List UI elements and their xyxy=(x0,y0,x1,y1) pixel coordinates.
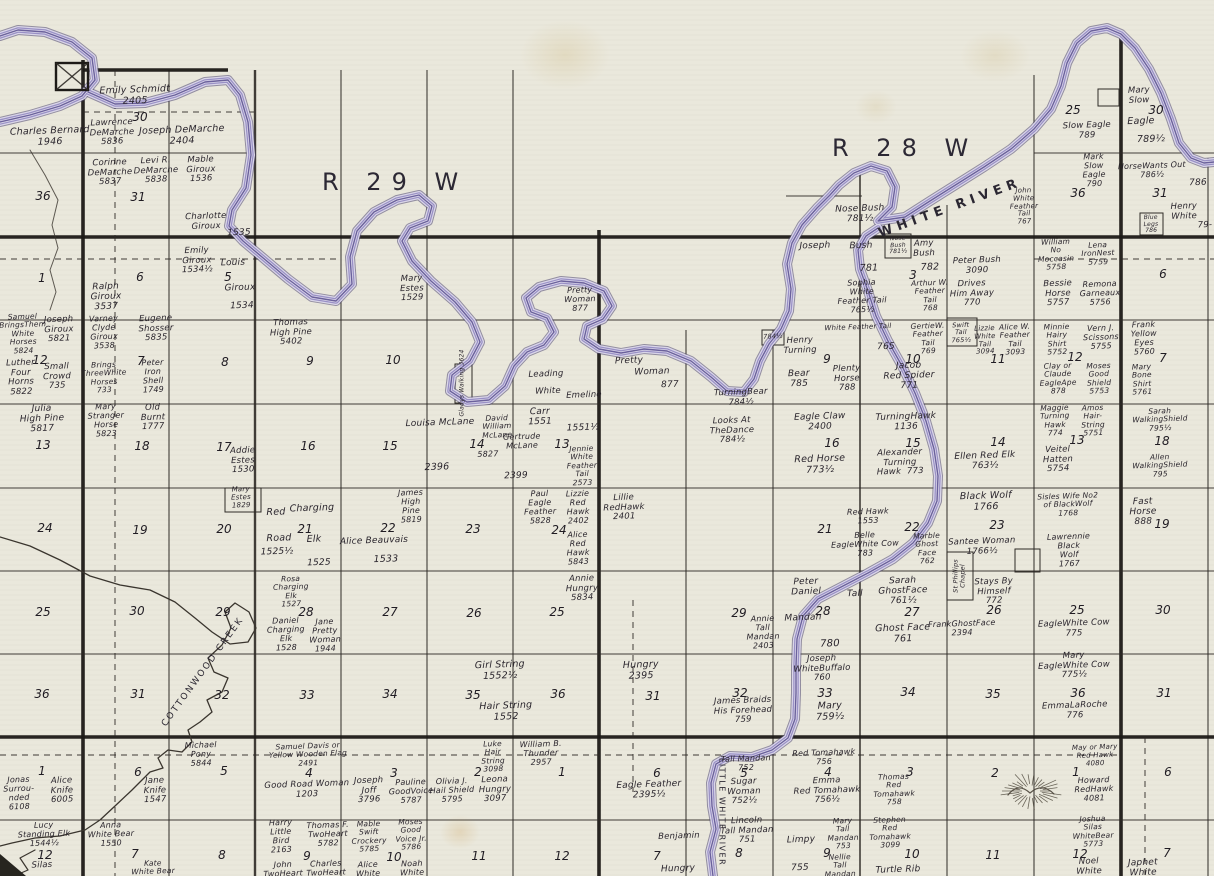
allotment-label: Giroux xyxy=(224,282,255,293)
allotment-label: Pauline GoodVoice 5787 xyxy=(388,778,433,806)
allotment-label: Alice Knife 6005 xyxy=(50,776,74,805)
section-number: 31 xyxy=(1152,186,1167,200)
section-number: 7 xyxy=(653,849,661,863)
allotment-label: Woman xyxy=(634,366,670,377)
allotment-label: Mark Slow Eagle 790 xyxy=(1082,153,1106,190)
allotment-label: Turtle Rib xyxy=(875,864,920,876)
allotment-label: Luke Hair String 3098 xyxy=(481,740,506,774)
allotment-label: Jane Knife 1547 xyxy=(143,776,167,805)
allotment-label: 1533 xyxy=(373,554,398,565)
allotment-label: Alexander Turning Hawk 773 xyxy=(876,448,924,478)
allotment-label: Charles TwoHeart xyxy=(306,859,346,876)
allotment-label: Howard RedHawk 4081 xyxy=(1074,776,1114,804)
allotment-label: Jane Pretty Woman 1944 xyxy=(309,618,342,655)
allotment-label: Bear 785 xyxy=(788,369,810,390)
allotment-label: Lawrennie Black Wolf 1767 xyxy=(1047,532,1091,569)
section-number: 9 xyxy=(823,352,831,366)
section-number: 12 xyxy=(1067,350,1082,364)
range-label-r29w: R 29 W xyxy=(322,168,468,196)
section-number: 29 xyxy=(731,606,746,620)
section-number: 3 xyxy=(390,766,398,780)
section-number: 10 xyxy=(385,353,400,367)
allotment-label: Leading xyxy=(528,370,563,381)
allotment-label: Drives Him Away 770 xyxy=(949,279,994,309)
section-number: 23 xyxy=(465,522,480,536)
section-number: 2 xyxy=(991,766,999,780)
allotment-label: 1525 xyxy=(307,558,331,569)
allotment-label: 2399 xyxy=(504,471,528,482)
allotment-label: Varney Clyde Giroux 3538 xyxy=(89,315,119,352)
allotment-label: 786 xyxy=(1189,178,1207,189)
plat-map-canvas: R 29 W R 28 W WHITE RIVER COTTONWOOD CRE… xyxy=(0,0,1214,876)
section-number: 5 xyxy=(224,270,232,284)
section-number: 14 xyxy=(469,437,484,451)
section-number: 34 xyxy=(382,687,397,701)
allotment-label: Lizzie Red Hawk 2402 xyxy=(566,490,591,527)
allotment-label: Leona Hungry 3097 xyxy=(478,775,511,805)
allotment-label: Girl String 1552½ xyxy=(475,660,526,683)
allotment-label: Louis xyxy=(221,258,246,269)
allotment-label: Daniel Charging Elk 1528 xyxy=(266,616,305,653)
section-number: 12 xyxy=(1072,847,1087,861)
section-number: 6 xyxy=(1164,765,1172,779)
section-number: 6 xyxy=(134,765,142,779)
section-number: 28 xyxy=(298,605,313,619)
section-number: 3 xyxy=(906,765,914,779)
allotment-label: Kate White Bear xyxy=(131,859,175,876)
allotment-label: Pretty xyxy=(615,355,644,366)
section-number: 26 xyxy=(466,606,481,620)
allotment-label: 877 xyxy=(661,380,679,391)
allotment-label: TurningHawk 1136 xyxy=(875,411,936,433)
section-number: 15 xyxy=(905,436,920,450)
section-number: 25 xyxy=(549,605,564,619)
allotment-label: Belle EagleWhite Cow 783 xyxy=(831,530,900,559)
section-number: 18 xyxy=(134,439,149,453)
section-number: 22 xyxy=(904,520,919,534)
section-number: 19 xyxy=(1154,517,1169,531)
section-number: 30 xyxy=(129,604,144,618)
allotment-label: Mable Swift Crockery 5785 xyxy=(351,820,387,855)
section-number: 7 xyxy=(1163,846,1171,860)
allotment-label: 789½ xyxy=(1137,134,1165,146)
section-number: 4 xyxy=(305,766,313,780)
section-number: 22 xyxy=(380,521,395,535)
allotment-label: TurningBear 784½ xyxy=(714,388,768,409)
allotment-label: Samuel Davis or Yellow Wooden Flag 2491 xyxy=(269,741,348,769)
allotment-label: Eagle Claw 2400 xyxy=(794,411,846,433)
section-number: 31 xyxy=(1156,686,1171,700)
section-number: 6 xyxy=(653,766,661,780)
allotment-label: Swift Tail 765½ xyxy=(951,322,971,344)
allotment-label: Frank Yellow Eyes 5760 xyxy=(1130,321,1157,358)
page-corner-shadow xyxy=(0,854,26,876)
allotment-label: John White Feather Tail 767 xyxy=(1009,187,1039,227)
allotment-label: Ghost Face 761 xyxy=(875,622,931,645)
allotment-label: Allen WalkingShield 795 xyxy=(1132,452,1188,479)
section-number: 31 xyxy=(130,687,145,701)
allotment-label: Peter Daniel xyxy=(791,576,822,597)
allotment-label: Bush xyxy=(849,241,872,252)
allotment-label: Nose Bush 781½ xyxy=(889,236,908,257)
section-number: 36 xyxy=(550,687,565,701)
section-number: 16 xyxy=(824,436,839,450)
section-number: 31 xyxy=(130,190,145,204)
section-number: 26 xyxy=(986,603,1001,617)
allotment-label: Annie Hungry 5834 xyxy=(565,574,598,604)
allotment-label: Annie Tall Mandan 2403 xyxy=(746,615,780,652)
section-number: 19 xyxy=(132,523,147,537)
section-number: 36 xyxy=(1070,186,1085,200)
section-number: 32 xyxy=(732,686,747,700)
section-number: 24 xyxy=(37,521,52,535)
section-number: 4 xyxy=(824,765,832,779)
allotment-label: Red xyxy=(266,507,285,518)
section-number: 33 xyxy=(299,688,314,702)
section-number: 5 xyxy=(220,764,228,778)
allotment-label: Alice White xyxy=(356,861,381,876)
allotment-label: Joshua Silas WhiteBear 5773 xyxy=(1072,815,1114,850)
allotment-label: Looks At TheDance 784½ xyxy=(709,416,754,446)
section-number: 25 xyxy=(1069,603,1084,617)
section-number: 17 xyxy=(216,440,231,454)
section-number: 11 xyxy=(990,352,1005,366)
allotment-label: Samuel BringsThem White Horses 5824 xyxy=(0,312,47,356)
allotment-label: James Braids His Forehead 759 xyxy=(713,696,772,727)
allotment-label: Hungry xyxy=(661,863,695,874)
section-number: 36 xyxy=(1070,686,1085,700)
allotment-label: Michael Pony 5844 xyxy=(185,741,218,769)
section-number: 1 xyxy=(1072,765,1080,779)
allotment-label: Lillie RedHawk 2401 xyxy=(603,493,645,523)
allotment-label: Charlotte Giroux xyxy=(185,212,227,232)
allotment-label: Ellen Red Elk 763½ xyxy=(954,450,1016,472)
section-number: 24 xyxy=(551,523,566,537)
range-label-r28w: R 28 W xyxy=(832,134,978,162)
section-number: 8 xyxy=(735,846,743,860)
allotment-label: Sophia White Feather Tail 765½ xyxy=(837,278,887,316)
allotment-label: Eugene Shosser 5835 xyxy=(138,314,174,344)
allotment-label: William No Moccasin 5758 xyxy=(1037,238,1074,273)
allotment-label: Charles Bernard 1946 xyxy=(10,125,91,149)
allotment-label: Red Horse 773½ xyxy=(794,453,846,476)
allotment-label: Pretty Woman 877 xyxy=(564,286,596,314)
section-number: 7 xyxy=(137,354,145,368)
section-number: 9 xyxy=(823,846,831,860)
section-number: 14 xyxy=(990,435,1005,449)
allotment-label: Clay or Claude EagleApe 878 xyxy=(1039,362,1077,397)
allotment-label: Sarah WalkingShield 795½ xyxy=(1132,406,1188,433)
section-number: 21 xyxy=(297,522,312,536)
allotment-label: Brings ThreeWhite Horses 733 xyxy=(81,360,128,395)
allotment-label: Vern J. Scissons 5755 xyxy=(1083,324,1120,352)
allotment-label: Thomas High Pine 5402 xyxy=(269,318,312,348)
allotment-label: Mary Estes 1529 xyxy=(400,274,425,303)
section-number: 35 xyxy=(465,688,480,702)
allotment-label: 1551½ xyxy=(567,422,600,433)
allotment-label: Emeline xyxy=(566,391,602,402)
allotment-label: Paul Eagle Feather 5828 xyxy=(523,490,556,527)
allotment-label: 1534 xyxy=(230,301,254,312)
allotment-label: Red Hawk 1553 xyxy=(847,507,889,526)
section-number: 12 xyxy=(32,353,47,367)
allotment-label: Mary Slow xyxy=(1128,86,1151,106)
allotment-label: Lawrence DeMarche 5836 xyxy=(89,118,135,148)
allotment-label: Nose Bush 781½ xyxy=(835,203,885,225)
allotment-label: John TwoHeart xyxy=(263,860,303,876)
allotment-label: Plenty Horse 788 xyxy=(833,364,862,393)
section-number: 6 xyxy=(136,270,144,284)
allotment-label: Gertrude McLane xyxy=(503,432,541,451)
section-number: 16 xyxy=(300,439,315,453)
allotment-label: 782 xyxy=(920,262,939,273)
allotment-label: Fast Horse 888 xyxy=(1129,496,1157,527)
allotment-label: Joseph Giroux 5821 xyxy=(44,315,74,345)
section-number: 5 xyxy=(740,766,748,780)
section-number: 31 xyxy=(645,689,660,703)
section-number: 7 xyxy=(131,847,139,861)
section-number: 36 xyxy=(34,687,49,701)
allotment-label: Alice Red Hawk 5843 xyxy=(566,531,590,568)
allotment-label: Joseph Joff 3796 xyxy=(354,776,384,806)
section-number: 7 xyxy=(1159,351,1167,365)
section-number: 9 xyxy=(303,849,311,863)
allotment-label: Silas xyxy=(31,861,52,871)
section-number: 21 xyxy=(817,522,832,536)
section-number: 1 xyxy=(38,271,46,285)
section-number: 15 xyxy=(382,439,397,453)
allotment-label: Sisles Wife No2 of BlackWolf 1768 xyxy=(1037,491,1099,518)
allotment-label: Hair String 1552 xyxy=(479,700,533,723)
section-number: 20 xyxy=(216,522,231,536)
section-number: 12 xyxy=(37,848,52,862)
section-number: 35 xyxy=(985,687,1000,701)
allotment-label: Thomas F. TwoHeart 5782 xyxy=(306,821,349,849)
allotment-label: Harry Little Bird 2163 xyxy=(269,819,293,856)
allotment-label: Julia High Pine 5817 xyxy=(19,403,65,435)
allotment-label: Joseph DeMarche 2404 xyxy=(139,124,225,148)
allotment-label: Elk xyxy=(306,534,321,545)
allotment-label: Sarah GhostFace 761½ xyxy=(878,575,928,607)
allotment-label: Hungry 2395 xyxy=(623,660,660,682)
section-number: 30 xyxy=(1155,603,1170,617)
section-number: 32 xyxy=(214,688,229,702)
section-number: 27 xyxy=(382,605,397,619)
section-number: 1 xyxy=(38,764,46,778)
allotment-label: Moses Good Shield 5753 xyxy=(1086,362,1112,396)
allotment-label: Mary EagleWhite Cow 775½ xyxy=(1038,650,1111,681)
allotment-label: Joseph WhiteBuffalo 760 xyxy=(793,654,851,685)
allotment-label: Levi R. DeMarche 5838 xyxy=(133,156,179,186)
allotment-label: Lincoln Tall Mandan 751 xyxy=(720,816,774,846)
allotment-label: HorseWants Out 786½ xyxy=(1118,161,1186,181)
allotment-label: Moses Good Voice Jr. 5786 xyxy=(395,818,427,853)
allotment-label: Jonas Surrou- nded 6108 xyxy=(3,776,35,813)
allotment-label: Carr 1551 xyxy=(528,407,552,428)
allotment-label: EagleWhite Cow 775 xyxy=(1038,618,1110,640)
allotment-label: White xyxy=(535,387,561,397)
section-number: 30 xyxy=(132,110,147,124)
allotment-label: Mable Giroux 1536 xyxy=(186,155,216,185)
white-river-band xyxy=(0,28,1214,876)
section-grid xyxy=(0,32,1214,876)
allotment-label: 1535 xyxy=(227,228,251,239)
allotment-label: Blue Legs 786 xyxy=(1143,215,1158,236)
allotment-label: 755 xyxy=(791,863,809,874)
allotment-label: FrankGhostFace 2394 xyxy=(928,619,996,639)
allotment-label: Eagle Feather 2395½ xyxy=(616,779,682,801)
allotment-label: Maggie Turning Hawk 774 xyxy=(1040,404,1071,439)
allotment-label: Corinne DeMarche 5837 xyxy=(87,158,133,188)
section-number: 12 xyxy=(554,849,569,863)
allotment-label: Olivia J. Hail Shield 5795 xyxy=(429,777,475,805)
allotment-label: EmmaLaRoche 776 xyxy=(1042,700,1108,721)
section-number: 1 xyxy=(558,765,566,779)
allotment-label: Road xyxy=(266,533,291,544)
allotment-label: Veitel Hatten 5754 xyxy=(1042,445,1073,475)
allotment-label: Limpy xyxy=(787,834,816,845)
section-number: 10 xyxy=(905,352,920,366)
allotment-label: Benjamin xyxy=(658,832,700,843)
section-number: 25 xyxy=(1065,103,1080,117)
allotment-label: Mary Estes 1829 xyxy=(231,486,252,510)
section-number: 25 xyxy=(35,605,50,619)
allotment-label: Ralph Giroux 3537 xyxy=(90,281,122,312)
allotment-label: 2396 xyxy=(424,462,449,473)
allotment-label: Lucy Standing Elk 1544½ xyxy=(17,821,70,850)
section-number: 10 xyxy=(386,850,401,864)
section-number: 9 xyxy=(306,354,314,368)
section-number: 8 xyxy=(221,355,229,369)
section-number: 27 xyxy=(904,605,919,619)
allotment-label: Anna White Bear 1550 xyxy=(87,821,134,849)
allotment-label: Mary Tall Mandan 753 xyxy=(827,817,859,852)
allotment-label: Slow Eagle 789 xyxy=(1063,121,1112,142)
section-number: 3 xyxy=(909,268,917,282)
allotment-label: Eagle xyxy=(1127,116,1155,128)
allotment-label: 784½ xyxy=(763,333,783,341)
allotment-label: 780 xyxy=(820,638,840,650)
section-number: 36 xyxy=(35,189,50,203)
section-number: 6 xyxy=(1159,267,1167,281)
allotment-label: Japhet White xyxy=(1128,857,1159,876)
allotment-label: Sugar Woman 752½ xyxy=(727,777,761,807)
allotment-label: Black Wolf 1766 xyxy=(960,490,1013,513)
allotment-label: 765 xyxy=(877,342,895,353)
allotment-label: Emily Giroux 1534½ xyxy=(181,246,213,276)
allotment-label: 1525½ xyxy=(261,546,294,557)
allotment-label: Peter Bush 3090 xyxy=(953,256,1002,277)
section-number: 10 xyxy=(904,847,919,861)
allotment-label: Joseph xyxy=(799,240,830,251)
allotment-label: Arthur W. Feather Tail 768 xyxy=(911,279,949,314)
section-number: 29 xyxy=(215,605,230,619)
section-number: 11 xyxy=(985,848,1000,862)
allotment-label: Jennie White Feather Tail 2573 xyxy=(566,445,598,488)
allotment-label: Mary 759½ xyxy=(816,701,845,723)
section-number: 33 xyxy=(817,686,832,700)
allotment-label: Marble Ghost Face 762 xyxy=(913,532,941,566)
allotment-label: Amy Bush xyxy=(913,239,935,259)
section-number: 28 xyxy=(815,604,830,618)
allotment-label: 781 xyxy=(859,263,878,274)
allotment-label: Lena IronNest 5759 xyxy=(1081,241,1115,267)
allotment-label: Remona Garneaux 5756 xyxy=(1079,280,1121,308)
allotment-label: Henry Turning xyxy=(783,336,817,356)
allotment-label: Emily Schmidt 2405 xyxy=(99,84,170,108)
section-number: 23 xyxy=(989,518,1004,532)
allotment-label: Gladys Walking 3624 xyxy=(460,349,467,416)
section-number: 13 xyxy=(554,437,569,451)
allotment-label: Charging xyxy=(289,503,334,515)
allotment-label: Bessie Horse 5757 xyxy=(1043,279,1073,309)
allotment-label: Addie Estes 1530 xyxy=(230,446,256,475)
section-number: 8 xyxy=(218,848,226,862)
allotment-label: 79- xyxy=(1198,221,1213,231)
allotment-label: James High Pine 5819 xyxy=(398,489,424,526)
allotment-label: Old Burnt 1777 xyxy=(140,403,165,432)
section-number: 18 xyxy=(1154,434,1169,448)
allotment-label: Noah White xyxy=(400,860,425,876)
section-number: 13 xyxy=(35,438,50,452)
section-number: 11 xyxy=(471,849,486,863)
little-white-river-label: LITTLE WHITE RIVER xyxy=(718,758,727,866)
allotment-label: Henry White xyxy=(1170,202,1197,222)
section-number: 2 xyxy=(474,765,482,779)
section-number: 13 xyxy=(1069,433,1084,447)
allotment-label: William B. Thunder 2957 xyxy=(520,740,563,768)
section-number: 30 xyxy=(1148,103,1163,117)
section-number: 34 xyxy=(900,685,915,699)
allotment-label: Tall xyxy=(847,589,863,600)
allotment-label: Santee Woman 1766½ xyxy=(948,536,1016,557)
allotment-label: Stephen Red Tomahawk 3099 xyxy=(869,816,912,851)
allotment-label: Mary Stranger Horse 5823 xyxy=(87,402,125,439)
allotment-label: Emma Red Tomahawk 756½ xyxy=(793,776,861,807)
allotment-label: Good Road Woman 1203 xyxy=(264,779,350,801)
allotment-label: 5827 xyxy=(477,450,498,460)
allotment-label: Mary Bone Shirt 5761 xyxy=(1131,363,1152,397)
allotment-label: St Phillips Chapel xyxy=(953,559,968,593)
